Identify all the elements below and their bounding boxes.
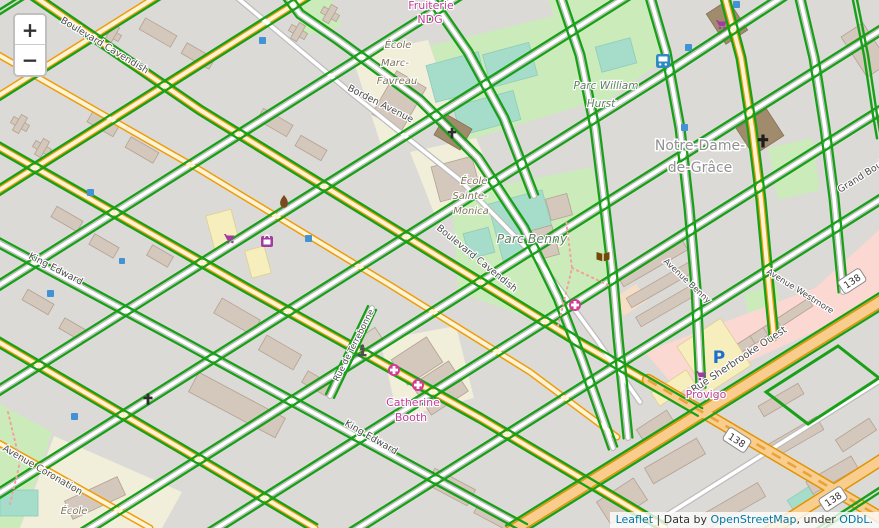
- building: [189, 372, 286, 437]
- building: [139, 18, 177, 47]
- odbl-link[interactable]: ODbL.: [839, 513, 873, 526]
- attribution-text: , under: [797, 513, 840, 526]
- leaflet-map[interactable]: P 138 138 138 Boulevard Cavendish Boulev…: [0, 0, 879, 528]
- map-canvas: P 138 138 138 Boulevard Cavendish Boulev…: [0, 0, 879, 528]
- street-label-grand-boulevard: Grand Boulevard: [836, 144, 879, 196]
- building: [258, 335, 301, 370]
- park-label-benny: Parc Benny: [497, 231, 568, 246]
- zoom-in-button[interactable]: +: [15, 15, 45, 45]
- attribution-bar: Leaflet | Data by OpenStreetMap, under O…: [610, 512, 879, 528]
- poi-label-fruiterie: NDG: [417, 13, 442, 26]
- school-label-marc-favreau: Favreau: [377, 76, 418, 87]
- hospital-icon: [412, 379, 424, 391]
- building: [835, 418, 876, 452]
- school-label-sainte-monica: Monica: [453, 206, 489, 217]
- bus-icon: [656, 54, 670, 68]
- building: [51, 206, 83, 231]
- park-label-william-hurst: Parc William: [574, 80, 639, 92]
- place-label-ndg: Notre-Dame-: [655, 138, 745, 154]
- openstreetmap-link[interactable]: OpenStreetMap: [711, 513, 797, 526]
- poi-label-provigo: Provigo: [686, 388, 727, 401]
- poi-label-catherine-booth: Booth: [395, 411, 427, 424]
- attribution-text: | Data by: [653, 513, 710, 526]
- school-label-sainte-monica: Sainte-: [452, 191, 488, 202]
- leaflet-link[interactable]: Leaflet: [616, 513, 653, 526]
- poi-label-fruiterie: Fruiterie: [408, 0, 454, 12]
- zoom-control: + −: [13, 13, 47, 77]
- building: [214, 298, 261, 335]
- building: [245, 246, 272, 278]
- school-label-sainte-monica: École: [461, 174, 488, 187]
- park-label-william-hurst: Hurst: [587, 98, 616, 110]
- school-label-marc-favreau: École: [385, 38, 412, 51]
- zoom-out-button[interactable]: −: [15, 45, 45, 75]
- school-label-sw: École: [61, 504, 88, 517]
- street-label-king-edward: King Edward: [27, 251, 85, 288]
- flame-icon: [280, 195, 288, 208]
- building: [758, 383, 804, 416]
- clinic-icon: [569, 299, 581, 311]
- building: [295, 135, 327, 160]
- hospital-icon: [388, 364, 400, 376]
- building: [89, 234, 119, 258]
- place-label-ndg: de-Grâce: [668, 160, 733, 176]
- shop-bag-icon: [261, 235, 273, 247]
- school-label-marc-favreau: Marc-: [381, 58, 409, 69]
- poi-label-catherine-booth: Catherine: [386, 396, 440, 409]
